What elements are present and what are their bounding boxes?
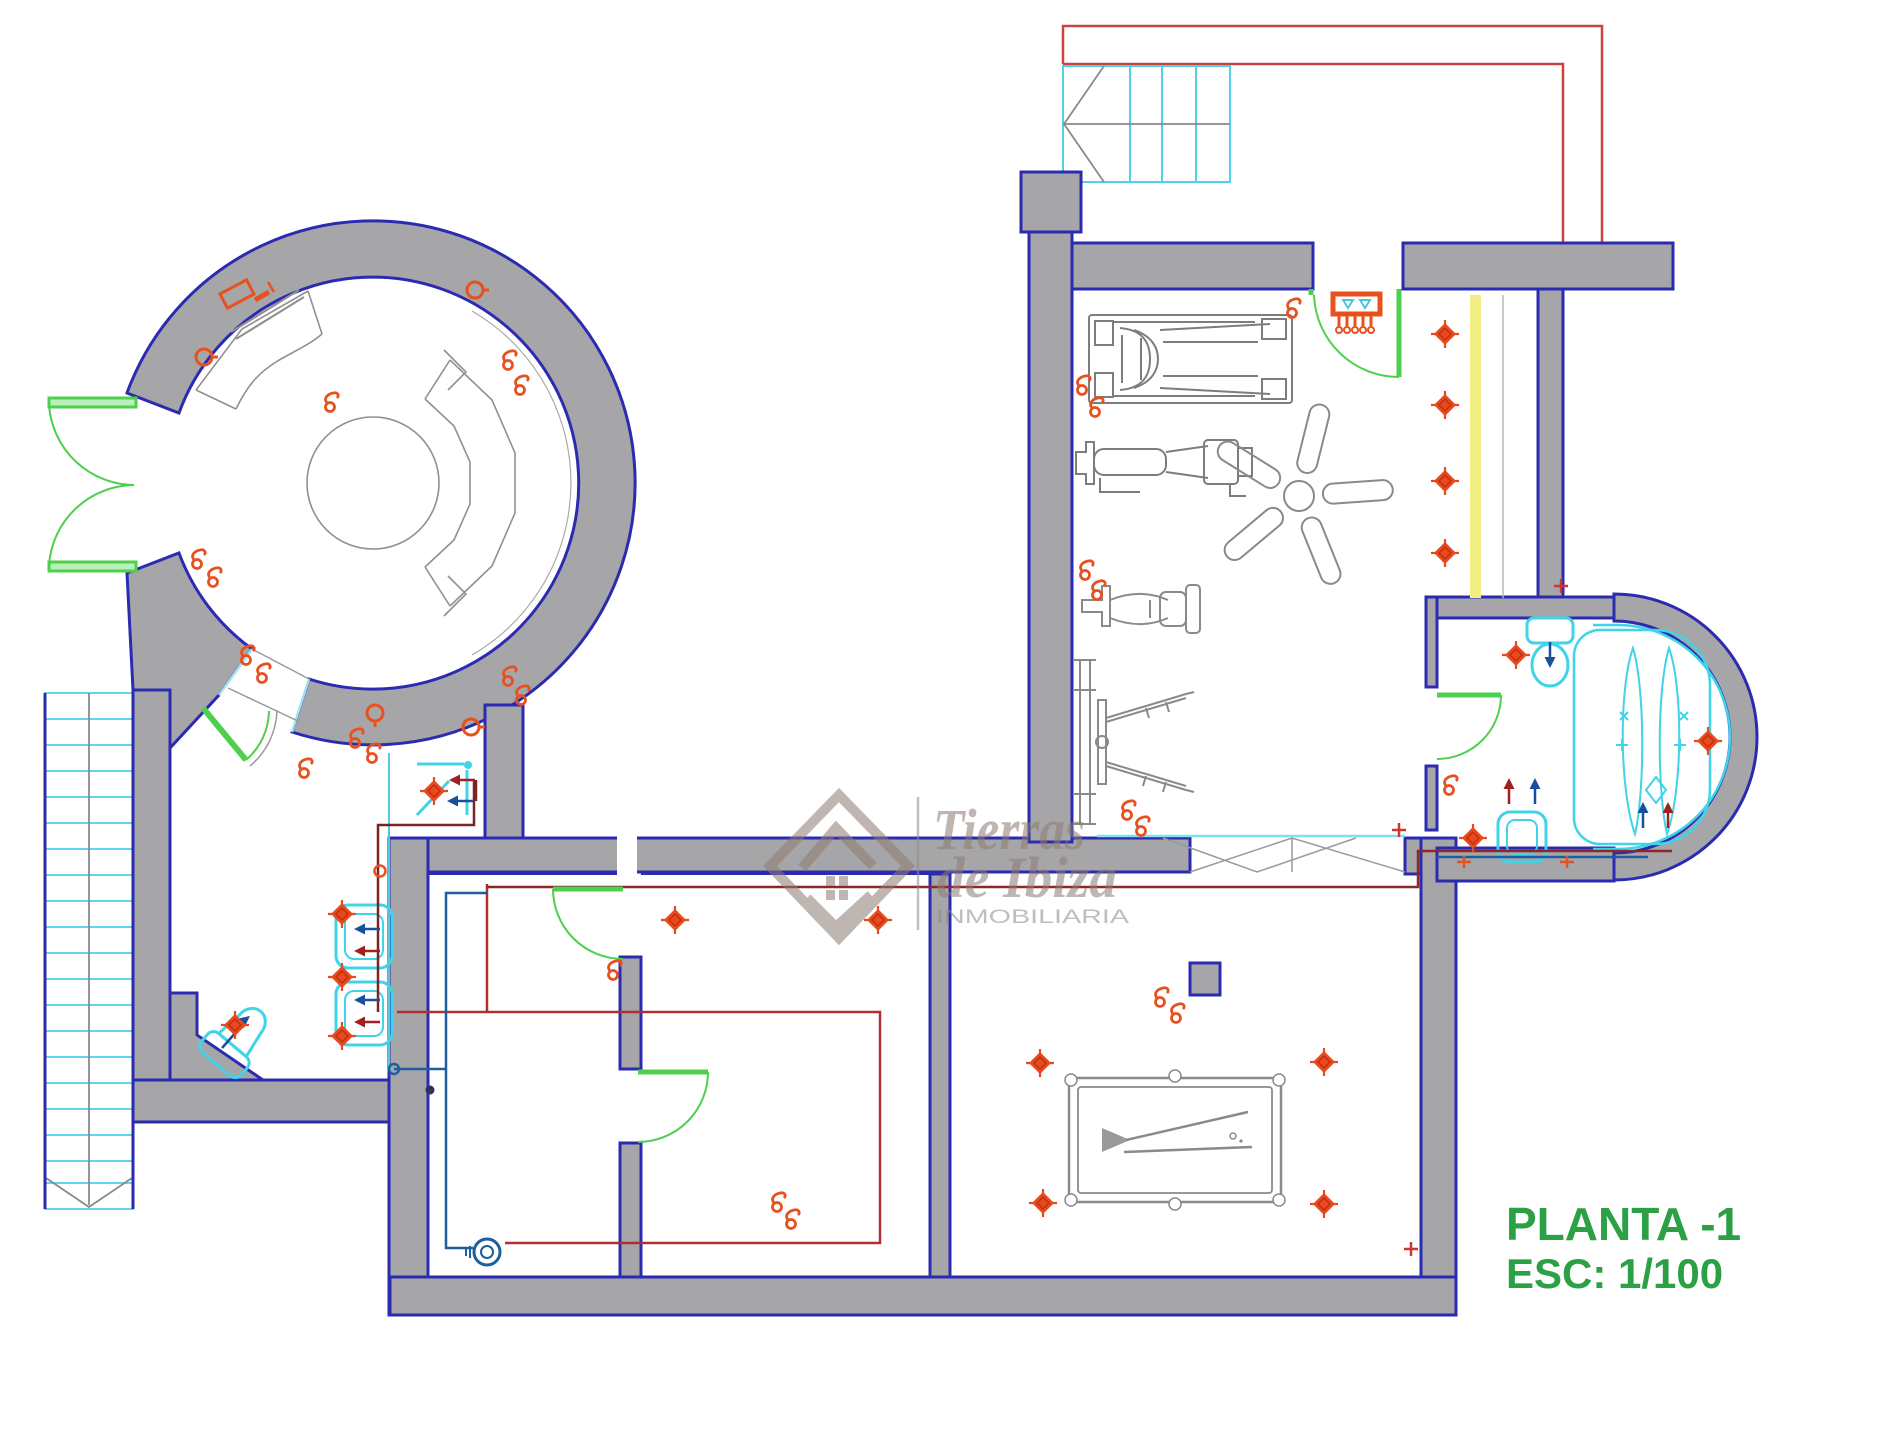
svg-text:INMOBILIARIA: INMOBILIARIA [936, 907, 1129, 928]
svg-text:PLANTA -1: PLANTA -1 [1506, 1198, 1741, 1250]
svg-text:ESC: 1/100: ESC: 1/100 [1506, 1250, 1723, 1297]
svg-text:de Ibiza: de Ibiza [937, 845, 1117, 910]
